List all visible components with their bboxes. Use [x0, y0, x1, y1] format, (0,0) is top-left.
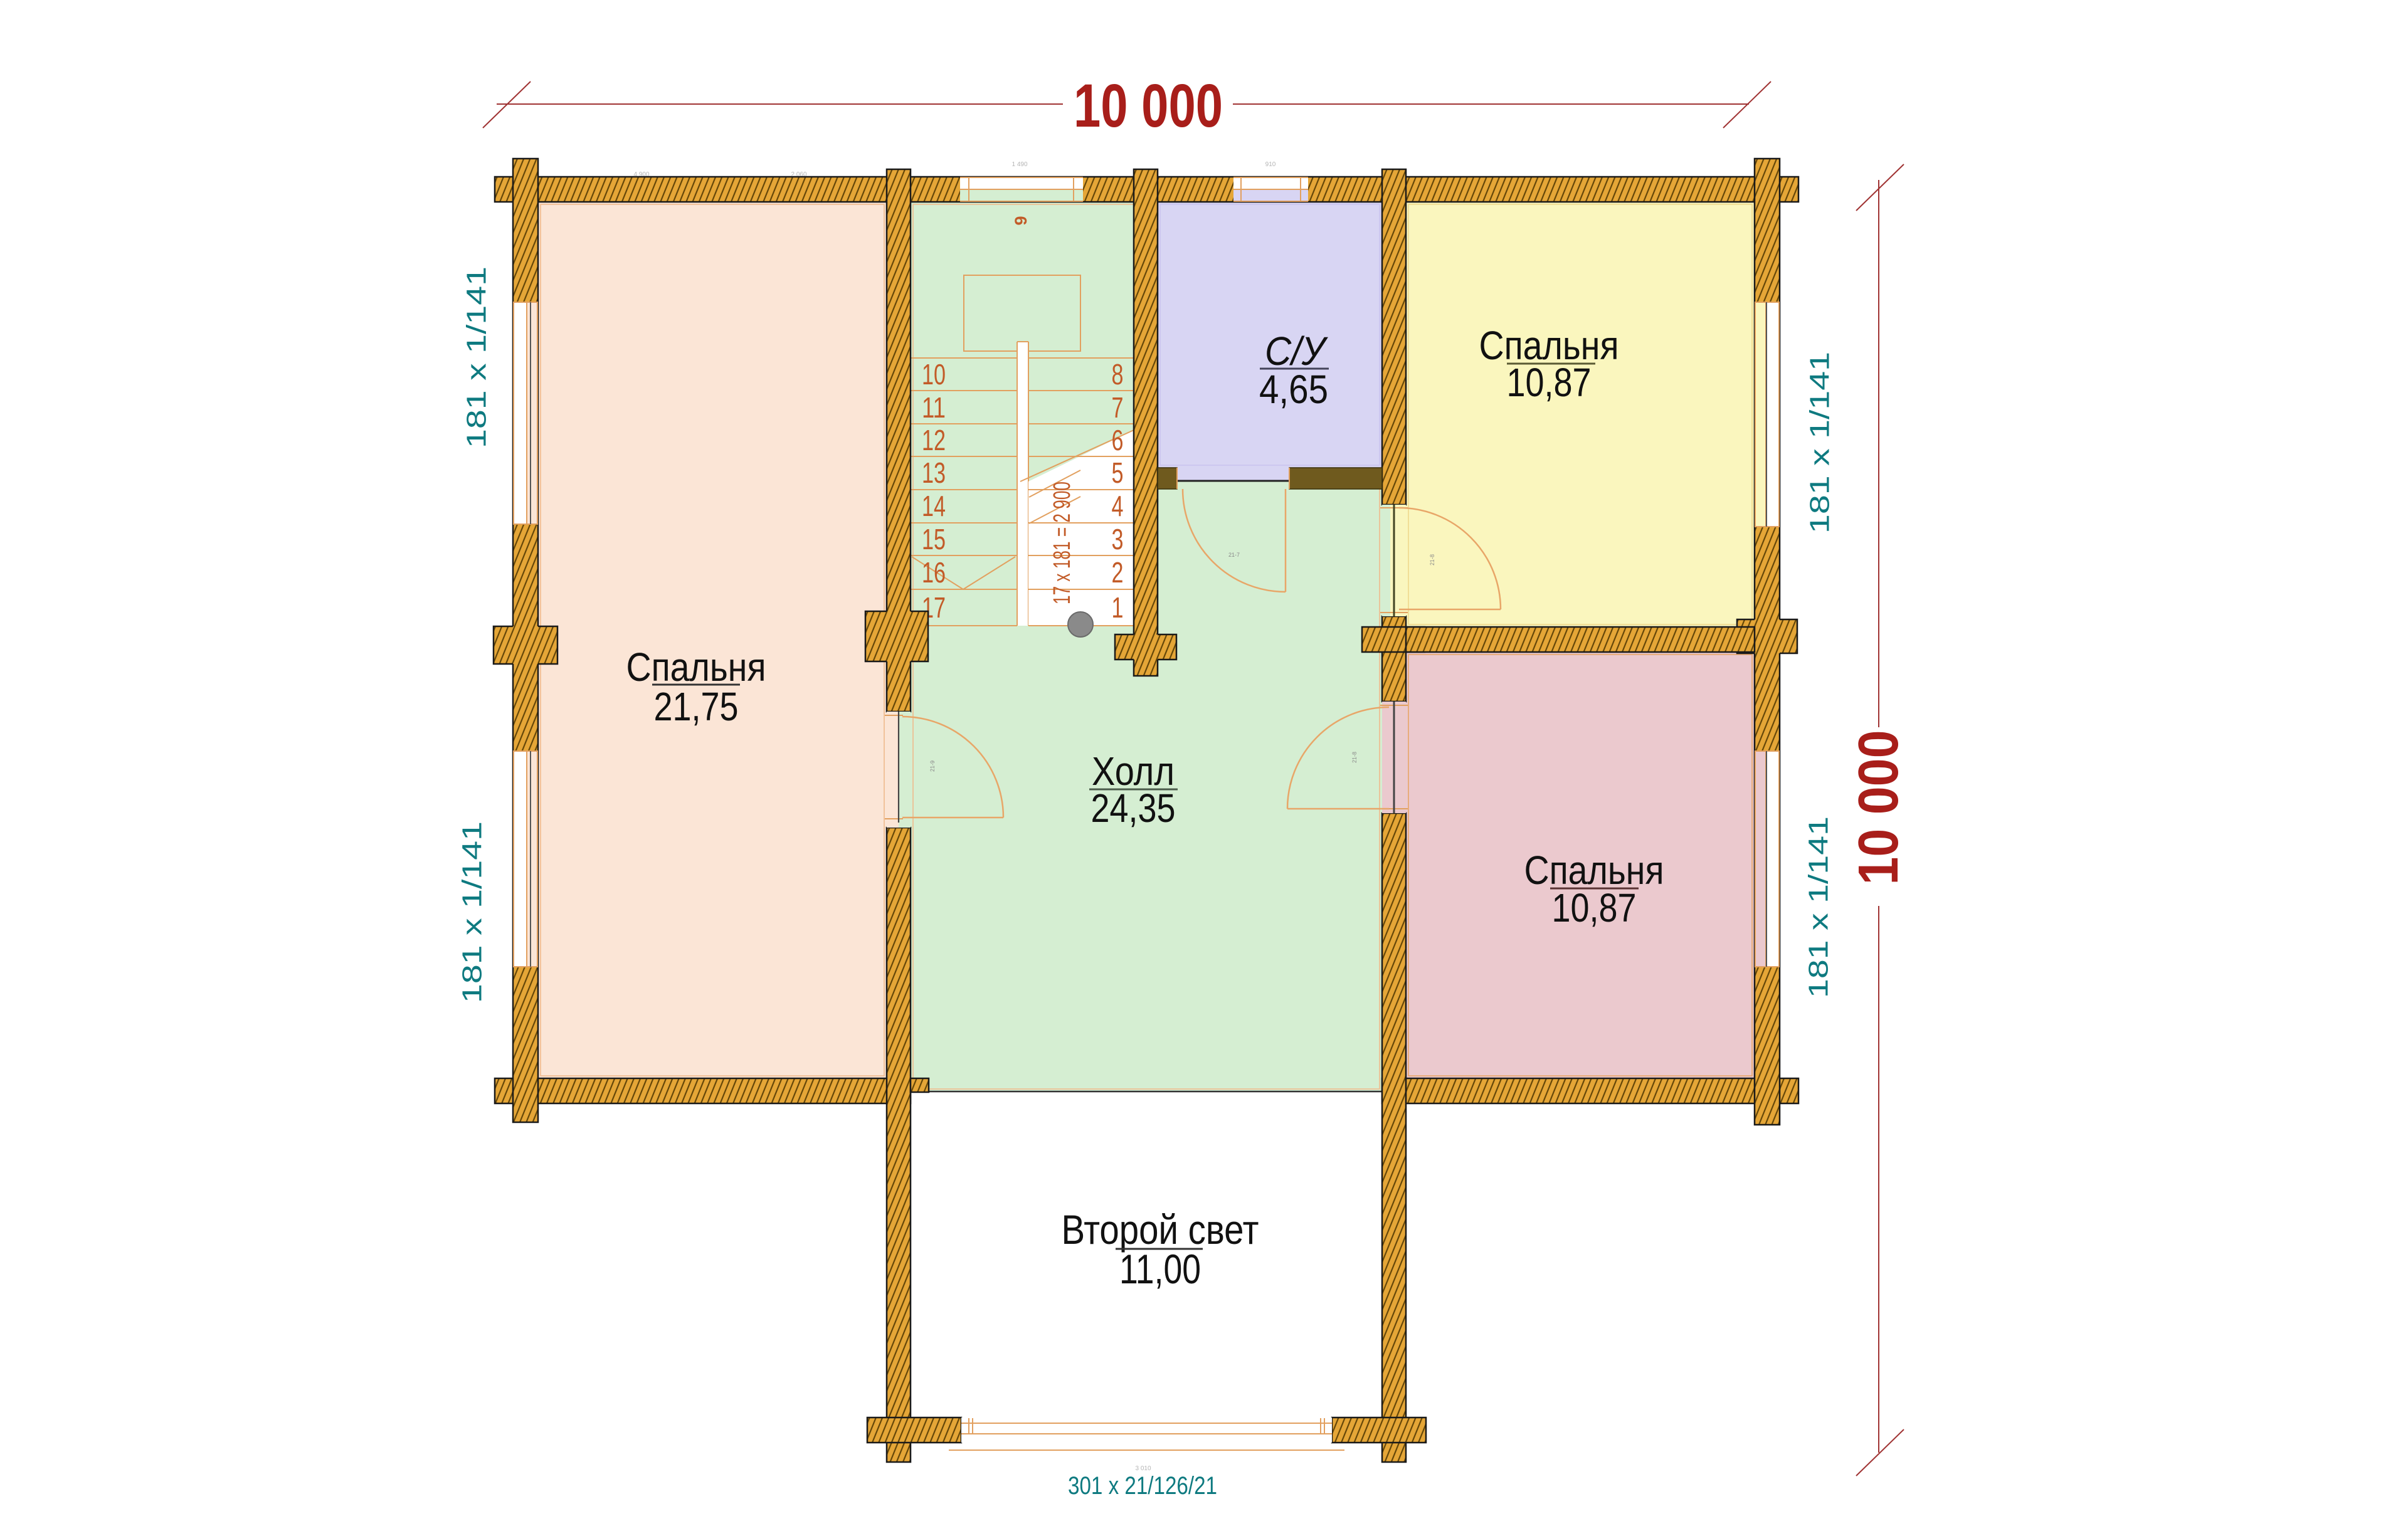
svg-text:5: 5: [1112, 456, 1124, 489]
svg-text:21,75: 21,75: [654, 684, 739, 729]
svg-text:3 010: 3 010: [1135, 1465, 1151, 1472]
svg-text:Спальня: Спальня: [626, 644, 766, 690]
svg-text:7: 7: [1112, 391, 1124, 424]
svg-text:4 900: 4 900: [633, 171, 649, 178]
svg-text:12: 12: [922, 424, 946, 456]
svg-text:4: 4: [1112, 490, 1124, 522]
svg-text:181 x 1/141: 181 x 1/141: [1803, 816, 1834, 998]
svg-text:11,00: 11,00: [1119, 1246, 1201, 1292]
svg-text:10 000: 10 000: [1847, 730, 1910, 885]
svg-text:16: 16: [922, 556, 946, 589]
svg-text:10,87: 10,87: [1552, 885, 1637, 930]
svg-text:8: 8: [1112, 358, 1124, 391]
svg-text:11: 11: [922, 391, 946, 424]
svg-text:21-7: 21-7: [1228, 552, 1240, 558]
svg-text:10 000: 10 000: [1074, 71, 1223, 140]
svg-text:910: 910: [1265, 161, 1276, 168]
svg-text:21-8: 21-8: [1429, 554, 1435, 566]
svg-text:15: 15: [922, 523, 946, 555]
svg-text:181 x 1/141: 181 x 1/141: [462, 266, 492, 448]
svg-text:6: 6: [1112, 424, 1124, 456]
svg-text:3: 3: [1112, 523, 1124, 555]
svg-text:10: 10: [922, 358, 946, 391]
svg-text:301 x 21/126/21: 301 x 21/126/21: [1068, 1472, 1217, 1500]
svg-text:2: 2: [1112, 556, 1124, 589]
svg-text:10,87: 10,87: [1507, 360, 1592, 405]
svg-text:2 060: 2 060: [791, 171, 806, 178]
svg-text:4,65: 4,65: [1259, 367, 1328, 412]
svg-text:181 x 1/141: 181 x 1/141: [1805, 352, 1835, 534]
svg-text:181 x 1/141: 181 x 1/141: [457, 821, 488, 1003]
svg-text:1: 1: [1112, 591, 1124, 624]
svg-text:21-9: 21-9: [929, 760, 936, 772]
svg-text:14: 14: [922, 490, 946, 522]
svg-text:24,35: 24,35: [1091, 786, 1176, 831]
svg-text:17 x 181 = 2 900: 17 x 181 = 2 900: [1049, 481, 1075, 604]
svg-text:9: 9: [1011, 216, 1030, 225]
svg-text:13: 13: [922, 456, 946, 489]
svg-text:21-8: 21-8: [1351, 752, 1358, 763]
svg-text:1 490: 1 490: [1011, 161, 1027, 168]
